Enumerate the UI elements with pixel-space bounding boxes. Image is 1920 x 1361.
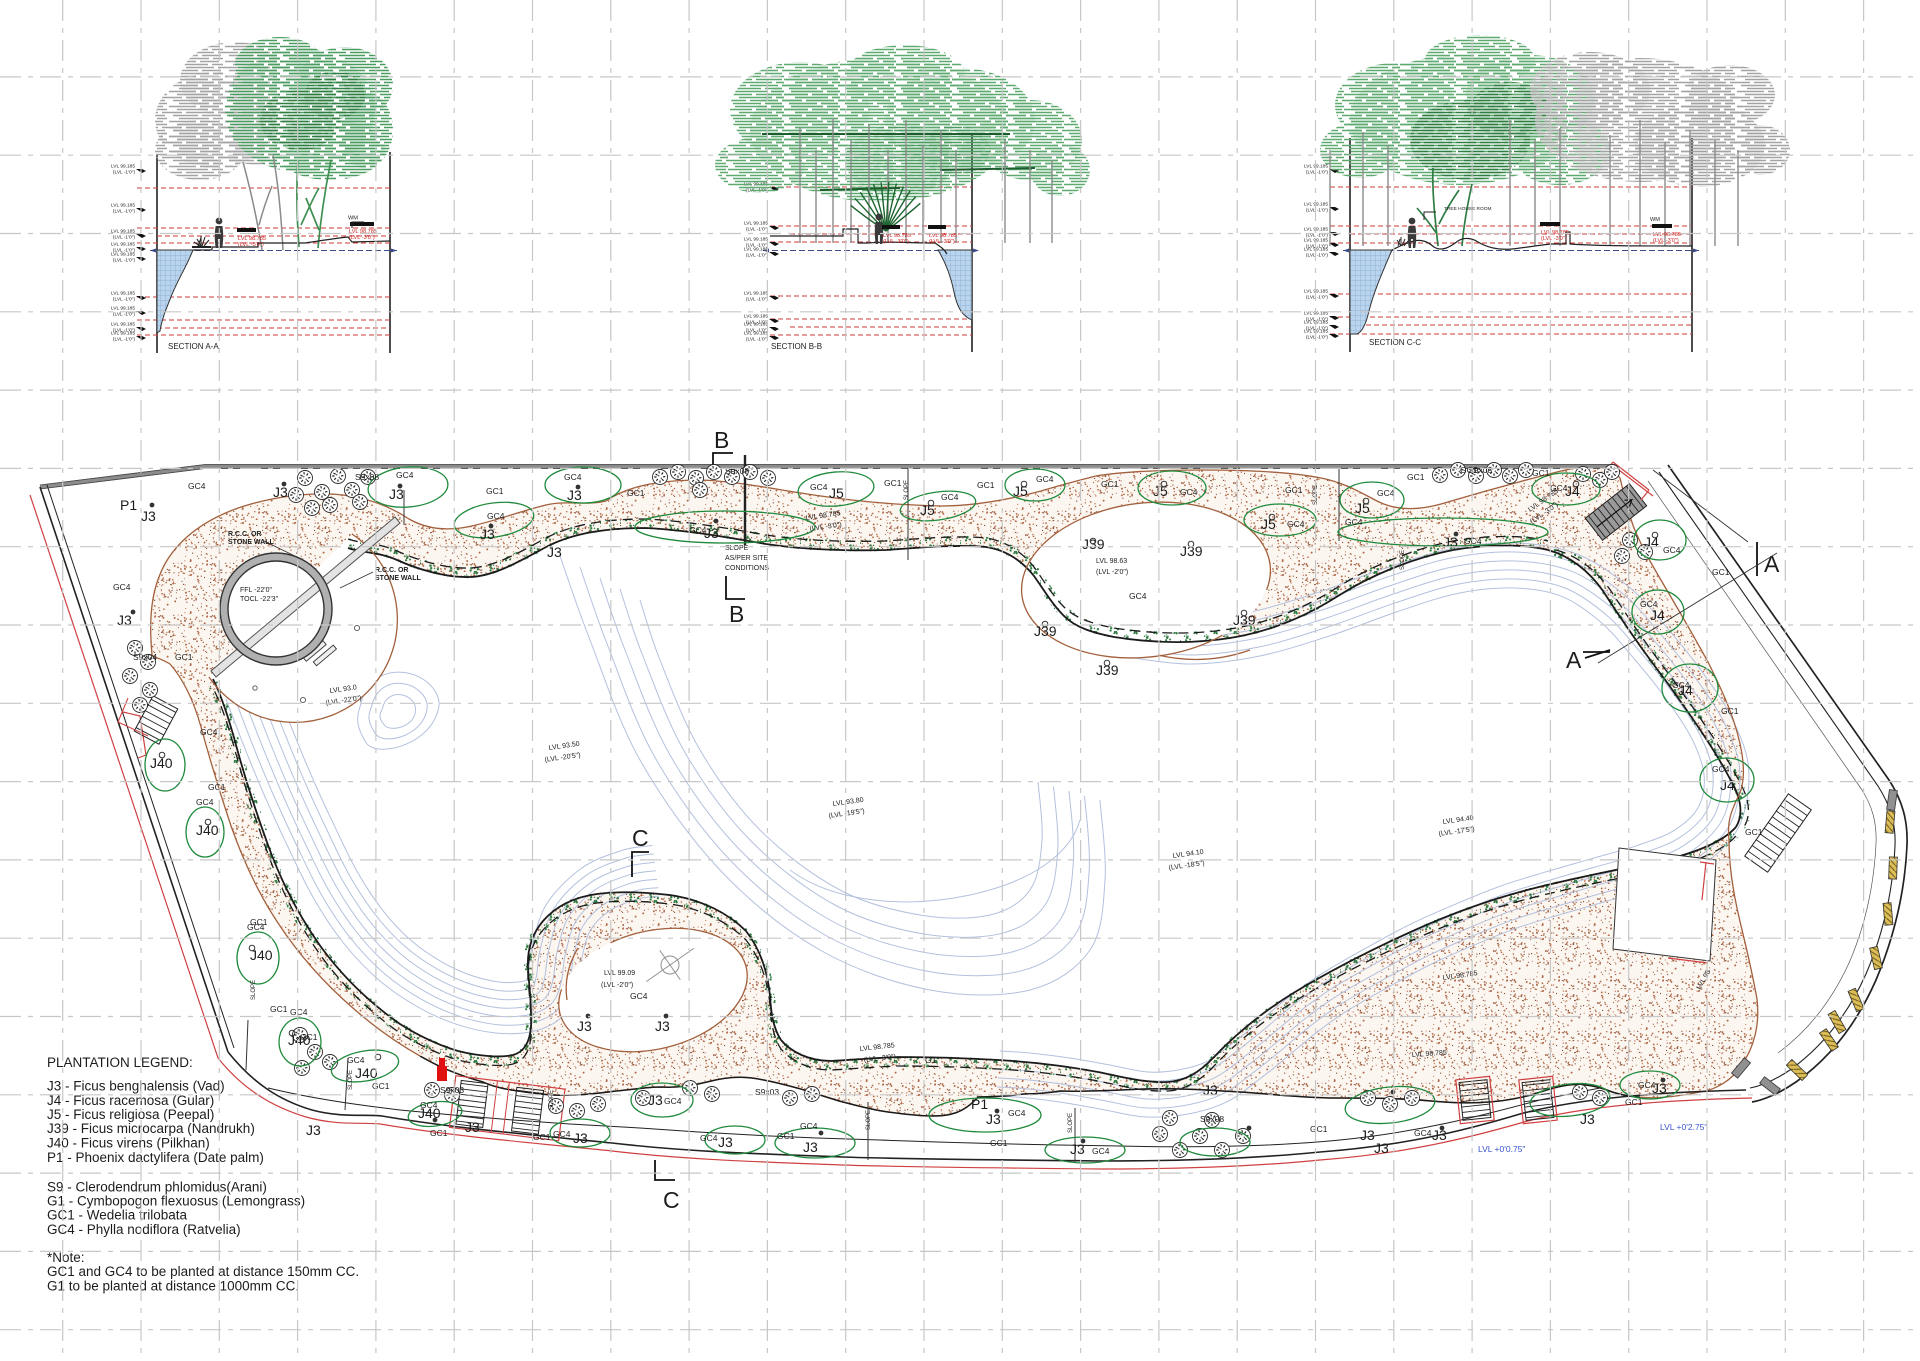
svg-text:G1: G1 <box>925 1055 937 1065</box>
svg-text:LVL 98.63: LVL 98.63 <box>1096 558 1127 565</box>
svg-text:GC1: GC1 <box>1532 468 1550 478</box>
svg-text:J3: J3 <box>1360 1127 1375 1143</box>
svg-text:GC4: GC4 <box>689 525 707 535</box>
svg-text:SECTION B-B: SECTION B-B <box>771 342 822 351</box>
svg-text:LVL 99.185: LVL 99.185 <box>111 291 135 297</box>
svg-text:J4: J4 <box>1720 777 1735 793</box>
svg-text:GC1: GC1 <box>1310 1124 1328 1134</box>
svg-text:LVL 99.185: LVL 99.185 <box>744 291 768 297</box>
svg-text:GC1: GC1 <box>300 1032 318 1042</box>
svg-text:J3 - Ficus benghalensis (Vad): J3 - Ficus benghalensis (Vad) <box>47 1079 225 1094</box>
svg-text:J40 - Ficus virens (Pilkhan): J40 - Ficus virens (Pilkhan) <box>47 1136 210 1151</box>
svg-text:B: B <box>729 601 744 627</box>
svg-text:LVL 99.185: LVL 99.185 <box>744 322 768 328</box>
svg-text:(LVL -1'0"): (LVL -1'0") <box>1306 170 1328 176</box>
svg-text:FFL -22'0": FFL -22'0" <box>240 587 272 594</box>
svg-text:J5: J5 <box>1261 516 1276 532</box>
svg-text:J39: J39 <box>1180 543 1203 559</box>
svg-text:J40: J40 <box>250 947 273 963</box>
svg-text:J3: J3 <box>986 1111 1001 1127</box>
svg-text:GC4: GC4 <box>1129 591 1147 601</box>
svg-text:GC4: GC4 <box>1712 764 1730 774</box>
svg-text:J5: J5 <box>920 502 935 518</box>
svg-text:GC1: GC1 <box>486 486 504 496</box>
svg-text:J5: J5 <box>1013 483 1028 499</box>
svg-text:J3: J3 <box>577 1018 592 1034</box>
svg-text:GC4: GC4 <box>564 472 582 482</box>
svg-text:J3: J3 <box>480 526 495 542</box>
svg-text:LVL 99.185: LVL 99.185 <box>744 237 768 243</box>
svg-text:GC1 and GC4 to be planted at d: GC1 and GC4 to be planted at distance 15… <box>47 1264 359 1279</box>
svg-text:GC1: GC1 <box>1712 567 1730 577</box>
svg-text:STONE WALL: STONE WALL <box>375 575 421 582</box>
svg-text:GC4: GC4 <box>247 922 265 932</box>
svg-text:J3: J3 <box>306 1122 321 1138</box>
svg-text:GC4 - Phylla nodiflora (Ratvel: GC4 - Phylla nodiflora (Ratvelia) <box>47 1222 241 1237</box>
svg-text:LVL +0'0.75": LVL +0'0.75" <box>1478 1144 1525 1154</box>
svg-text:G1 - Cymbopogon flexuosus (Lem: G1 - Cymbopogon flexuosus (Lemongrass) <box>47 1194 305 1209</box>
svg-text:LVL 99.185: LVL 99.185 <box>1304 320 1328 326</box>
svg-text:GC1: GC1 <box>270 1004 288 1014</box>
svg-text:J3: J3 <box>389 486 404 502</box>
svg-text:GC4: GC4 <box>188 481 206 491</box>
svg-text:LVL 99.09: LVL 99.09 <box>604 970 635 977</box>
svg-text:J40: J40 <box>355 1065 378 1081</box>
svg-text:GC1: GC1 <box>777 1131 795 1141</box>
svg-text:P1: P1 <box>120 497 137 513</box>
svg-text:GC4: GC4 <box>1377 488 1395 498</box>
svg-text:GC1: GC1 <box>430 1128 448 1138</box>
svg-text:GC4: GC4 <box>200 727 218 737</box>
svg-text:GC4: GC4 <box>420 1100 438 1110</box>
svg-text:LVL 99.185: LVL 99.185 <box>1304 329 1328 335</box>
svg-text:J3: J3 <box>273 484 288 500</box>
svg-text:J5: J5 <box>1355 500 1370 516</box>
svg-text:SLOPE: SLOPE <box>904 480 910 500</box>
svg-text:(LVL -1'0"): (LVL -1'0") <box>113 170 135 176</box>
svg-text:LVL 99.185: LVL 99.185 <box>744 314 768 320</box>
svg-text:R.C.C. OR: R.C.C. OR <box>375 567 408 574</box>
svg-text:GC4: GC4 <box>941 492 959 502</box>
svg-text:LVL 99.185: LVL 99.185 <box>744 247 768 253</box>
svg-text:SECTION A-A: SECTION A-A <box>168 342 219 351</box>
svg-text:GC4: GC4 <box>630 991 648 1001</box>
svg-text:(LVL -3'0"): (LVL -3'0") <box>349 235 375 241</box>
svg-text:GC1: GC1 <box>372 1081 390 1091</box>
svg-text:J3: J3 <box>1374 1140 1389 1156</box>
svg-text:SLOPE: SLOPE <box>549 1090 555 1110</box>
svg-text:(LVL -1'0"): (LVL -1'0") <box>113 258 135 264</box>
svg-text:LVL 99.185: LVL 99.185 <box>1304 164 1328 170</box>
svg-text:GC1: GC1 <box>1101 479 1119 489</box>
svg-text:(LVL -3'0"): (LVL -3'0") <box>238 242 264 248</box>
svg-text:GC1: GC1 <box>990 1138 1008 1148</box>
svg-text:C: C <box>663 1187 680 1213</box>
svg-text:S9x03: S9x03 <box>440 1085 464 1095</box>
svg-text:GC1 - Wedelia trilobata: GC1 - Wedelia trilobata <box>47 1208 188 1223</box>
svg-text:SLOPE: SLOPE <box>1068 1113 1074 1133</box>
svg-text:SLOPE: SLOPE <box>348 1070 354 1090</box>
svg-text:LVL 99.185: LVL 99.185 <box>1304 202 1328 208</box>
svg-text:GC1: GC1 <box>1721 706 1739 716</box>
svg-text:(LVL -1'0"): (LVL -1'0") <box>1306 253 1328 259</box>
svg-text:GC4: GC4 <box>664 1096 682 1106</box>
svg-text:(LVL -3'0"): (LVL -3'0") <box>929 239 955 245</box>
svg-text:LVL 99.185: LVL 99.185 <box>1304 289 1328 295</box>
svg-text:LVL 99.185: LVL 99.185 <box>111 306 135 312</box>
svg-text:GC4: GC4 <box>1672 680 1690 690</box>
svg-text:GC1: GC1 <box>977 480 995 490</box>
svg-text:GC4: GC4 <box>487 511 505 521</box>
svg-text:A: A <box>1566 647 1582 673</box>
svg-text:J3: J3 <box>465 1119 480 1135</box>
svg-text:GC4: GC4 <box>1464 536 1482 546</box>
svg-text:J4: J4 <box>1644 534 1659 550</box>
svg-text:GC4: GC4 <box>196 797 214 807</box>
svg-text:LVL 99.185: LVL 99.185 <box>111 242 135 248</box>
svg-text:GC1: GC1 <box>1285 485 1303 495</box>
svg-text:P1 - Phoenix dactylifera (Date: P1 - Phoenix dactylifera (Date palm) <box>47 1150 264 1165</box>
svg-text:GC4: GC4 <box>1180 487 1198 497</box>
svg-text:J3: J3 <box>1580 1111 1595 1127</box>
svg-text:SLOPE: SLOPE <box>725 545 749 552</box>
svg-text:(LVL -1'0"): (LVL -1'0") <box>113 209 135 215</box>
svg-text:LVL 99.185: LVL 99.185 <box>111 252 135 258</box>
svg-text:J3: J3 <box>567 487 582 503</box>
svg-text:GC1: GC1 <box>884 478 902 488</box>
svg-text:GC4: GC4 <box>347 1055 365 1065</box>
svg-text:(LVL -2'0"): (LVL -2'0") <box>1096 569 1128 576</box>
svg-text:(LVL -1'0"): (LVL -1'0") <box>1306 208 1328 214</box>
svg-text:TOCL -22'3": TOCL -22'3" <box>240 596 279 603</box>
svg-text:GC4: GC4 <box>1345 517 1363 527</box>
svg-text:LVL 99.185: LVL 99.185 <box>111 203 135 209</box>
svg-text:G1 to be planted at distance 1: G1 to be planted at distance 1000mm CC. <box>47 1278 299 1293</box>
svg-text:*Note:: *Note: <box>47 1250 85 1265</box>
svg-text:GC1: GC1 <box>1625 1097 1643 1107</box>
svg-text:LVL 99.185: LVL 99.185 <box>111 164 135 170</box>
svg-text:(LVL -3'0"): (LVL -3'0") <box>1653 238 1679 244</box>
svg-text:AS/PER SITE: AS/PER SITE <box>725 555 769 562</box>
svg-text:LVL 99.185: LVL 99.185 <box>1304 238 1328 244</box>
svg-text:(LVL -2'0"): (LVL -2'0") <box>601 982 633 989</box>
svg-text:LVL 99.185: LVL 99.185 <box>111 331 135 337</box>
svg-text:WM: WM <box>348 216 358 222</box>
svg-text:(LVL -1'0"): (LVL -1'0") <box>113 337 135 343</box>
svg-text:CONDITIONS: CONDITIONS <box>725 565 769 572</box>
svg-text:PLANTATION LEGEND:: PLANTATION LEGEND: <box>47 1055 193 1070</box>
svg-text:LVL 99.185: LVL 99.185 <box>744 221 768 227</box>
svg-text:(LVL -1'0"): (LVL -1'0") <box>746 297 768 303</box>
svg-text:J5 - Ficus religiosa (Peepal): J5 - Ficus religiosa (Peepal) <box>47 1107 214 1122</box>
svg-text:S9 - Clerodendrum phlomidus(Ar: S9 - Clerodendrum phlomidus(Arani) <box>47 1180 267 1195</box>
svg-text:(LVL -1'0"): (LVL -1'0") <box>1306 295 1328 301</box>
svg-text:GC4: GC4 <box>1008 1108 1026 1118</box>
svg-text:LVL 99.185: LVL 99.185 <box>1304 227 1328 233</box>
svg-text:GC4: GC4 <box>1414 1128 1432 1138</box>
svg-text:(LVL -1'0"): (LVL -1'0") <box>746 227 768 233</box>
svg-text:GC4: GC4 <box>1638 1080 1656 1090</box>
svg-text:LVL 99.185: LVL 99.185 <box>1304 247 1328 253</box>
svg-text:J5: J5 <box>1153 483 1168 499</box>
svg-text:J3: J3 <box>718 1134 733 1150</box>
svg-text:GC4: GC4 <box>1287 519 1305 529</box>
svg-text:S9x08: S9x08 <box>725 466 749 476</box>
svg-text:GC4: GC4 <box>700 1133 718 1143</box>
svg-text:(LVL -3'0"): (LVL -3'0") <box>883 239 909 245</box>
svg-text:GC4: GC4 <box>800 1121 818 1131</box>
svg-text:WM: WM <box>1650 217 1660 223</box>
svg-text:J5: J5 <box>829 485 844 501</box>
svg-text:GC4: GC4 <box>1092 1146 1110 1156</box>
svg-text:GC4: GC4 <box>396 470 414 480</box>
svg-text:B: B <box>714 427 729 453</box>
svg-text:C: C <box>632 825 649 851</box>
svg-text:TREE HOUSE ROOM: TREE HOUSE ROOM <box>1444 206 1491 212</box>
svg-text:GC1: GC1 <box>1745 827 1763 837</box>
svg-text:J39 - Ficus microcarpa (Nandru: J39 - Ficus microcarpa (Nandrukh) <box>47 1121 255 1136</box>
svg-text:GC4: GC4 <box>290 1007 308 1017</box>
svg-text:LVL 99.185: LVL 99.185 <box>111 322 135 328</box>
svg-text:J39: J39 <box>1096 662 1119 678</box>
svg-text:J3: J3 <box>1203 1082 1218 1098</box>
svg-text:(LVL -3'0"): (LVL -3'0") <box>1541 236 1567 242</box>
svg-text:(LVL -1'0"): (LVL -1'0") <box>113 235 135 241</box>
svg-text:GC1: GC1 <box>627 488 645 498</box>
svg-text:SLOPE: SLOPE <box>251 980 257 1000</box>
svg-text:J3: J3 <box>573 1130 588 1146</box>
svg-text:SECTION C-C: SECTION C-C <box>1369 338 1421 347</box>
svg-text:GC1: GC1 <box>533 1132 551 1142</box>
svg-text:GC1: GC1 <box>175 652 193 662</box>
svg-text:(LVL -1'0"): (LVL -1'0") <box>746 337 768 343</box>
svg-text:R.C.C. OR: R.C.C. OR <box>228 531 261 538</box>
svg-text:LVL 99.185: LVL 99.185 <box>744 331 768 337</box>
svg-text:J4: J4 <box>1650 607 1665 623</box>
svg-text:P1: P1 <box>971 1096 988 1112</box>
svg-text:GC1: GC1 <box>1407 472 1425 482</box>
svg-text:SLOPE: SLOPE <box>1400 550 1406 570</box>
svg-text:GC4: GC4 <box>1640 599 1658 609</box>
svg-text:(LVL -1'0"): (LVL -1'0") <box>1306 335 1328 341</box>
svg-text:GC4: GC4 <box>810 482 828 492</box>
svg-text:J3: J3 <box>1070 1141 1085 1157</box>
svg-text:GC4: GC4 <box>113 582 131 592</box>
svg-text:A: A <box>1764 551 1780 577</box>
svg-text:J3: J3 <box>803 1139 818 1155</box>
svg-text:SLOPE: SLOPE <box>866 1110 872 1130</box>
svg-text:J3: J3 <box>1443 534 1458 550</box>
svg-text:J3: J3 <box>141 508 156 524</box>
svg-text:GC4: GC4 <box>1036 474 1054 484</box>
svg-text:S9x04: S9x04 <box>133 652 157 662</box>
svg-text:S9x08: S9x08 <box>1200 1114 1224 1124</box>
svg-text:J3: J3 <box>1432 1127 1447 1143</box>
svg-text:(LVL -1'0"): (LVL -1'0") <box>113 297 135 303</box>
svg-text:(LVL -1'0"): (LVL -1'0") <box>746 253 768 259</box>
svg-text:GC4: GC4 <box>553 1129 571 1139</box>
svg-text:J3: J3 <box>655 1018 670 1034</box>
svg-text:LVL +0'2.75": LVL +0'2.75" <box>1660 1122 1707 1132</box>
svg-text:GC1: GC1 <box>208 782 226 792</box>
